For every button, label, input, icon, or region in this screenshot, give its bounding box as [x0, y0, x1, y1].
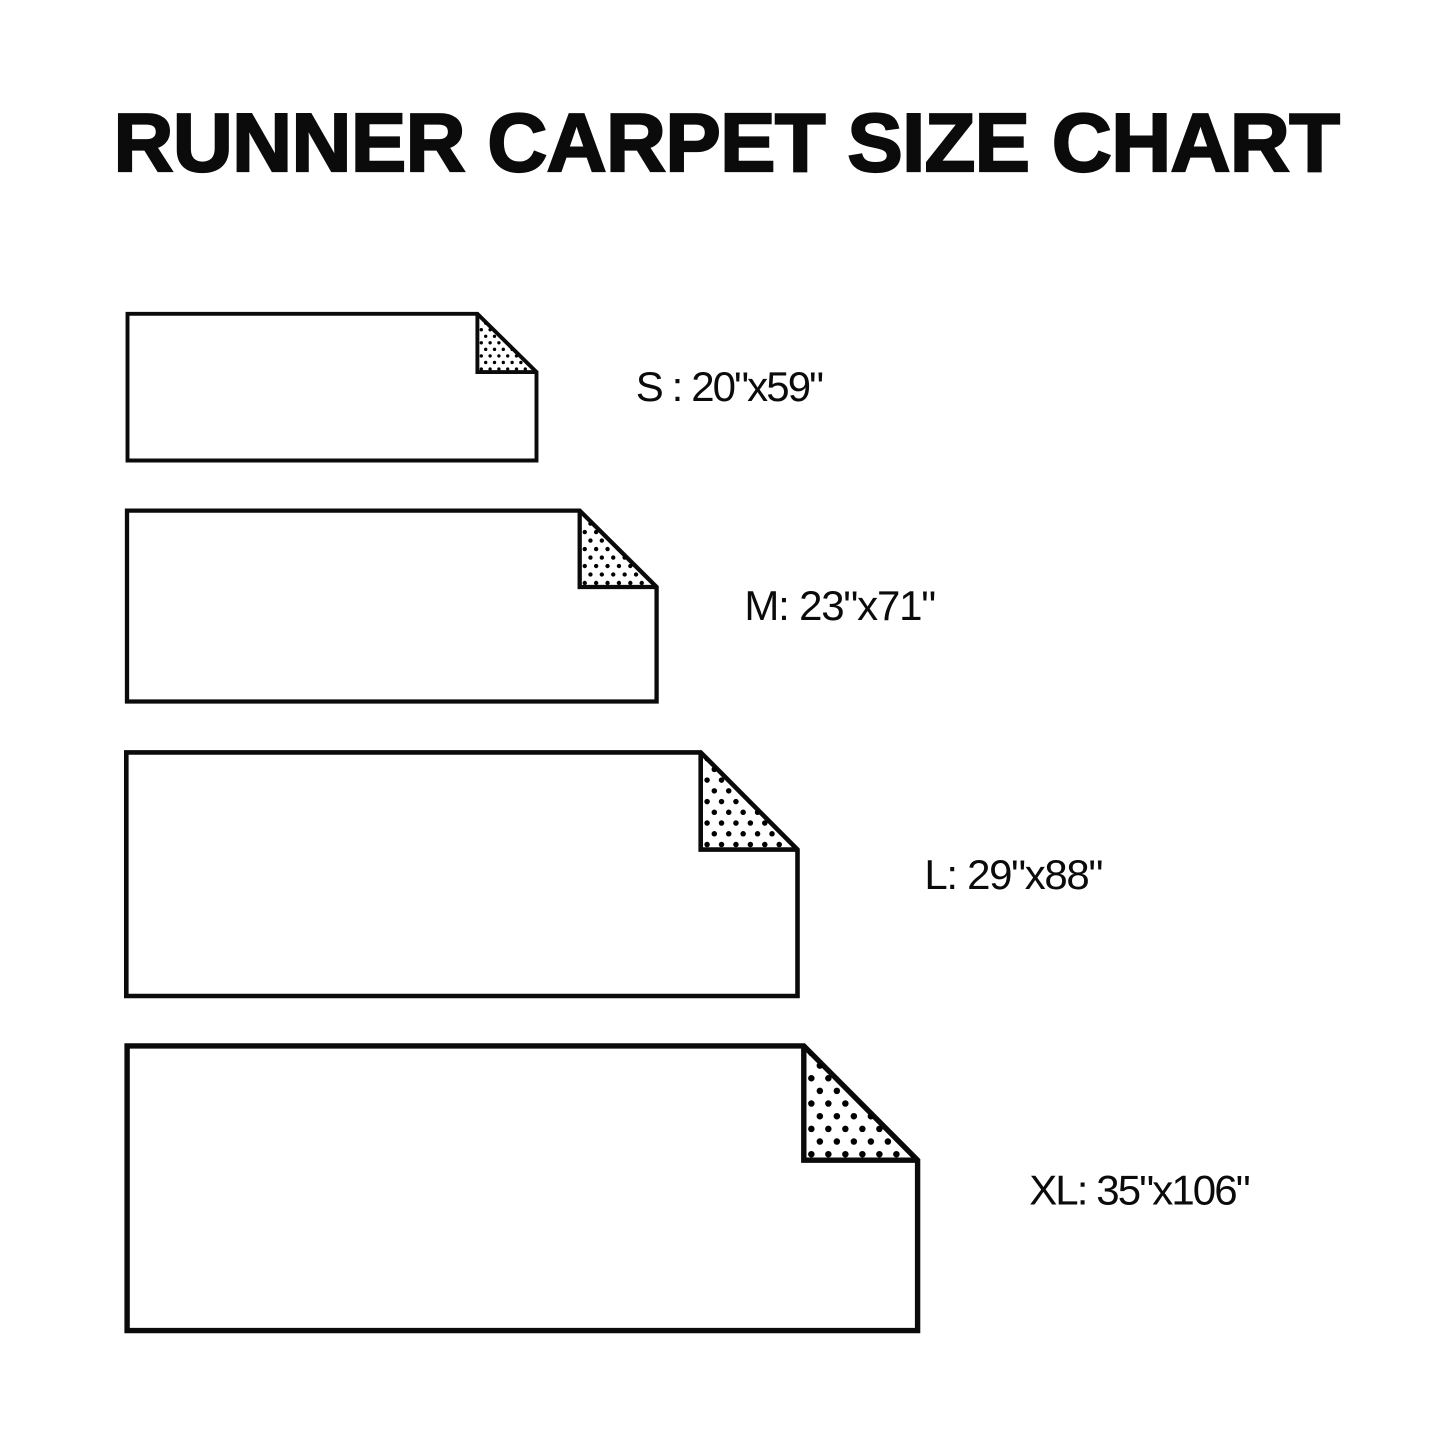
svg-text:RUNNER CARPET SIZE CHART: RUNNER CARPET SIZE CHART	[114, 96, 1340, 189]
svg-text:S : 20"x59": S : 20"x59"	[636, 363, 823, 410]
svg-text:XL: 35"x106": XL: 35"x106"	[1029, 1167, 1250, 1214]
svg-text:M: 23"x71": M: 23"x71"	[744, 582, 935, 629]
svg-text:L: 29"x88": L: 29"x88"	[924, 851, 1102, 898]
